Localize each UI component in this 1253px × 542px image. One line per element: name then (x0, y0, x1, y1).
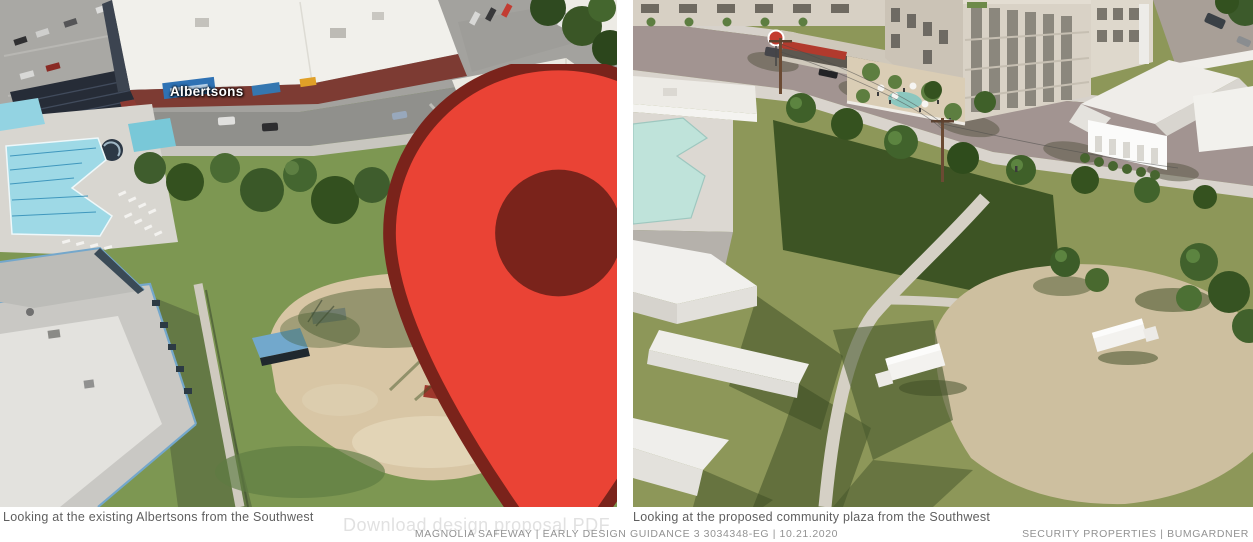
map-pin-label: Albertsons (170, 84, 244, 99)
footer-firms-line: SECURITY PROPERTIES | BUMGARDNER (1022, 528, 1249, 540)
map-pin-icon (250, 64, 617, 507)
edg-slide: Albertsons (0, 0, 1253, 542)
render-scene (633, 0, 1253, 507)
caption-existing: Looking at the existing Albertsons from … (3, 510, 314, 524)
caption-proposed: Looking at the proposed community plaza … (633, 510, 990, 524)
pedestrian (1015, 166, 1018, 172)
existing-aerial-photo: Albertsons (0, 0, 617, 507)
proposed-render (633, 0, 1253, 507)
